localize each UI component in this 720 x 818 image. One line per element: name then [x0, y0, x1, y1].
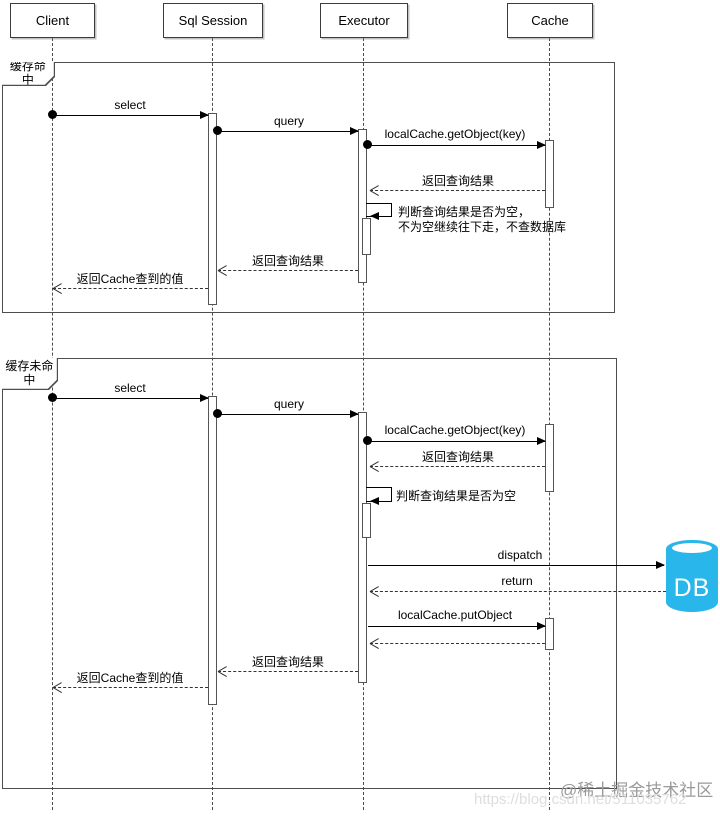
message-return-result-label: 返回查询结果: [422, 172, 494, 189]
message-put-object-arrow: [368, 626, 545, 627]
note-line-2: 不为空继续往下走，不查数据库: [398, 220, 566, 235]
participant-executor-label: Executor: [338, 13, 389, 28]
activation-sql-session-1: [208, 113, 217, 305]
self-message-arrowhead: [370, 497, 379, 505]
message-dispatch-label: dispatch: [498, 548, 543, 562]
message-return-cache-value-arrow: [53, 288, 208, 289]
message-query-arrow: [218, 131, 358, 132]
participant-sql-session-label: Sql Session: [179, 13, 248, 28]
frame-cache-hit-tab: 缓存命中: [2, 62, 55, 86]
message-get-object-label: localCache.getObject(key): [385, 423, 526, 437]
activation-executor-2: [358, 412, 367, 683]
activation-executor-2-nested: [362, 503, 371, 538]
sequence-diagram: Client Sql Session Executor Cache 缓存命中 s…: [0, 0, 720, 818]
frame-cache-miss-label: 缓存未命中: [2, 358, 57, 389]
message-get-object-arrow: [368, 145, 545, 146]
participant-cache-label: Cache: [531, 13, 569, 28]
note-line-1: 判断查询结果是否为空，: [398, 205, 566, 220]
watermark-url: https://blog.csdn.net/511035762: [474, 791, 686, 808]
message-start-dot: [363, 140, 372, 149]
message-start-dot: [213, 126, 222, 135]
message-get-object-arrow: [368, 441, 545, 442]
message-dispatch-arrow: [368, 565, 664, 566]
message-query-arrow: [218, 414, 358, 415]
activation-cache-put: [545, 618, 554, 650]
participant-cache: Cache: [507, 3, 593, 38]
database-top-hole: [672, 543, 712, 553]
participant-executor: Executor: [320, 3, 408, 38]
message-put-return-arrow: [370, 643, 545, 644]
message-start-dot: [48, 393, 57, 402]
activation-executor-1-nested: [362, 218, 371, 255]
message-return-result-arrow: [370, 466, 545, 467]
message-start-dot: [48, 110, 57, 119]
message-return-cache-value-label: 返回Cache查到的值: [77, 270, 184, 287]
message-query-label: query: [274, 397, 304, 411]
frame-cache-hit-label: 缓存命中: [2, 62, 54, 85]
message-return-cache-value-arrow: [53, 687, 208, 688]
message-return-result-arrow: [218, 270, 358, 271]
message-return-result-label: 返回查询结果: [252, 653, 324, 670]
self-message-arrowhead: [370, 212, 379, 220]
message-start-dot: [363, 436, 372, 445]
message-get-object-label: localCache.getObject(key): [385, 127, 526, 141]
activation-cache-1: [545, 140, 554, 208]
message-select-arrow: [53, 398, 208, 399]
message-select-label: select: [114, 381, 145, 395]
message-select-arrow: [53, 115, 208, 116]
message-start-dot: [213, 409, 222, 418]
participant-client: Client: [10, 3, 95, 38]
message-return-result-label: 返回查询结果: [252, 252, 324, 269]
self-message-note: 判断查询结果是否为空: [396, 489, 516, 504]
message-db-return-label: return: [501, 574, 532, 588]
database-icon: DB: [666, 540, 718, 612]
self-message-note: 判断查询结果是否为空， 不为空继续往下走，不查数据库: [398, 205, 566, 235]
participant-sql-session: Sql Session: [163, 3, 263, 38]
message-select-label: select: [114, 98, 145, 112]
message-return-cache-value-label: 返回Cache查到的值: [77, 669, 184, 686]
activation-sql-session-2: [208, 396, 217, 705]
database-label: DB: [666, 574, 718, 603]
message-put-object-label: localCache.putObject: [398, 608, 512, 622]
message-return-result-arrow: [370, 190, 545, 191]
activation-cache-2: [545, 424, 554, 492]
participant-client-label: Client: [36, 13, 69, 28]
message-db-return-arrow: [370, 591, 666, 592]
frame-cache-miss-tab: 缓存未命中: [2, 358, 58, 390]
message-return-result-arrow: [218, 671, 358, 672]
message-query-label: query: [274, 114, 304, 128]
message-return-result-label: 返回查询结果: [422, 448, 494, 465]
